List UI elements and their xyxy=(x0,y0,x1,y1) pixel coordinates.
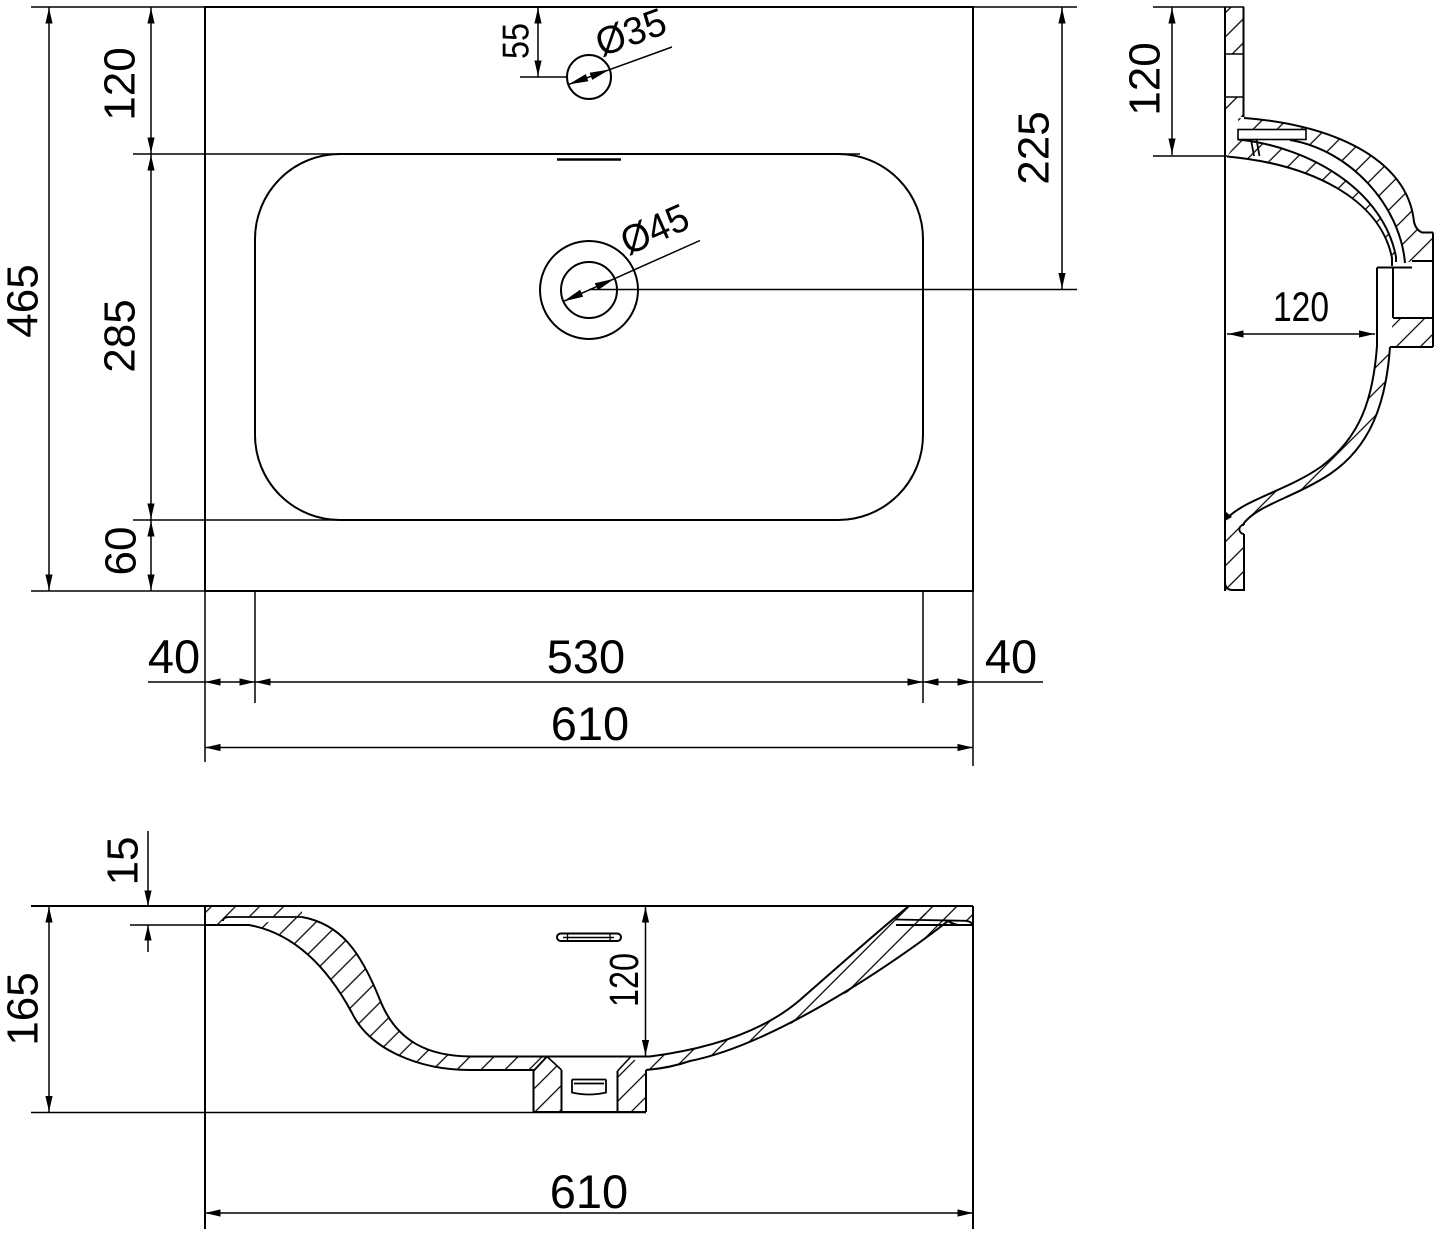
svg-text:530: 530 xyxy=(547,630,625,683)
svg-text:610: 610 xyxy=(550,1165,628,1218)
svg-text:40: 40 xyxy=(148,630,200,683)
svg-text:610: 610 xyxy=(551,697,629,750)
svg-text:120: 120 xyxy=(601,953,647,1007)
svg-text:15: 15 xyxy=(99,837,148,886)
svg-text:120: 120 xyxy=(1121,42,1170,115)
svg-text:165: 165 xyxy=(0,972,48,1045)
svg-text:120: 120 xyxy=(1273,283,1329,330)
svg-text:120: 120 xyxy=(96,47,145,120)
svg-text:55: 55 xyxy=(496,23,537,59)
svg-text:225: 225 xyxy=(1010,111,1059,184)
svg-text:40: 40 xyxy=(985,630,1037,683)
svg-text:285: 285 xyxy=(96,299,145,372)
svg-text:60: 60 xyxy=(97,527,146,576)
svg-text:465: 465 xyxy=(0,264,48,337)
